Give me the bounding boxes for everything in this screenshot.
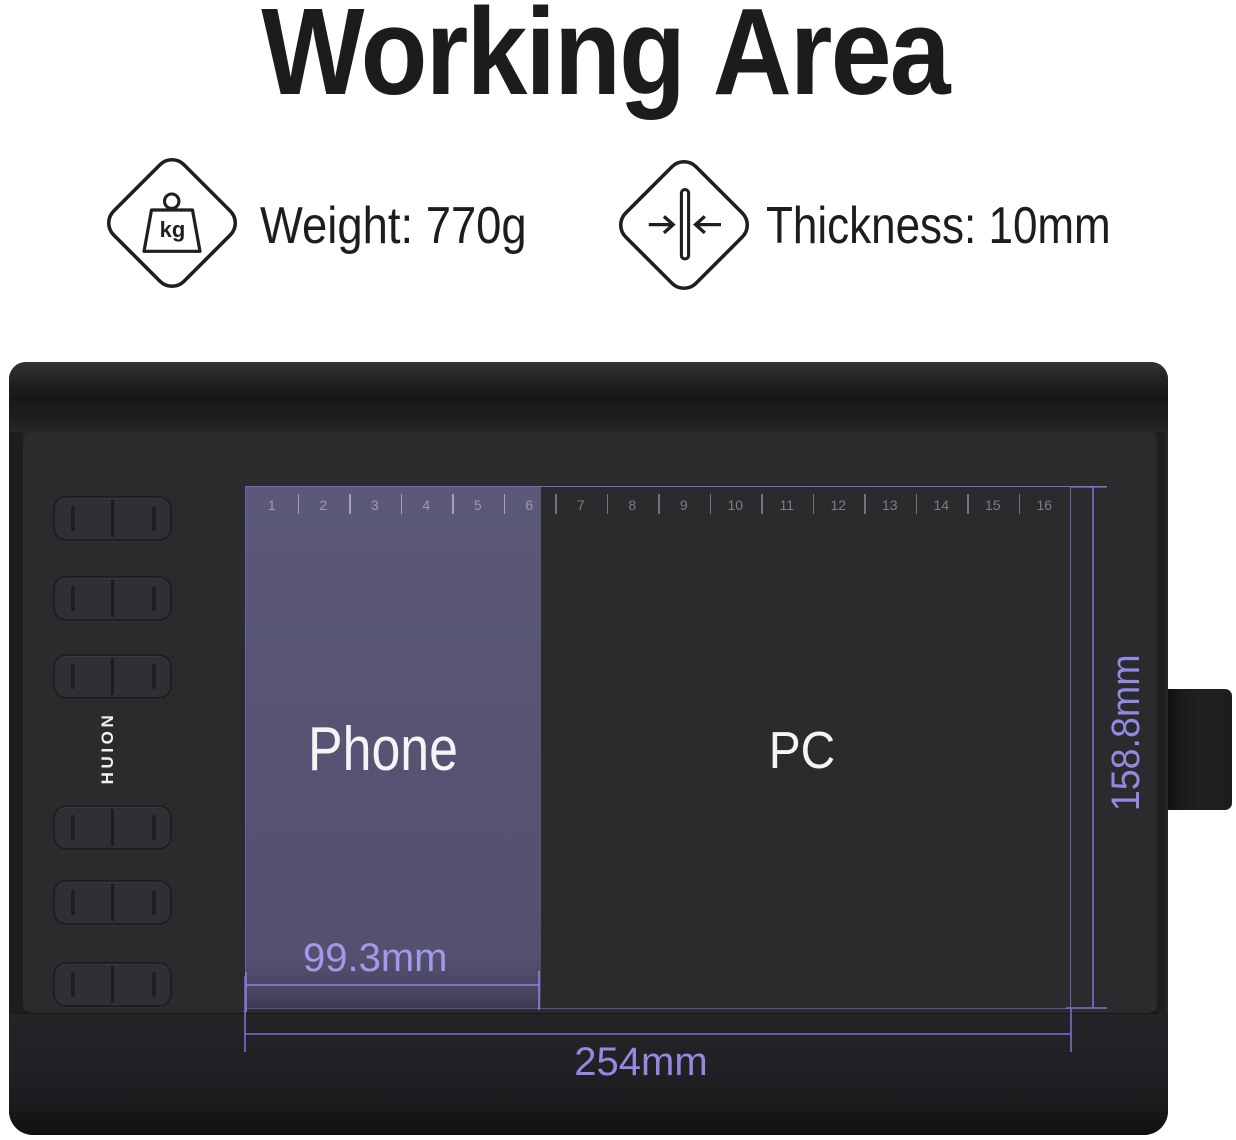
svg-text:kg: kg (160, 217, 186, 242)
